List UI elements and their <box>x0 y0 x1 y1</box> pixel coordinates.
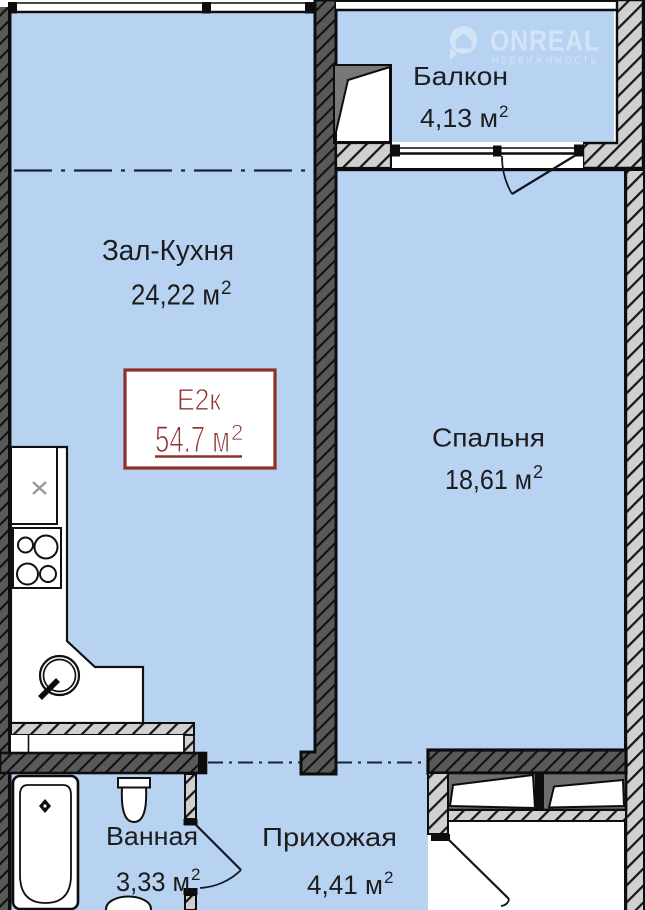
svg-text:НЕДВИЖИМОСТЬ: НЕДВИЖИМОСТЬ <box>492 55 599 67</box>
svg-text:2: 2 <box>221 278 232 299</box>
svg-text:54.7 м: 54.7 м <box>155 419 230 460</box>
svg-text:2: 2 <box>191 865 200 884</box>
svg-text:Е2к: Е2к <box>177 382 221 417</box>
svg-text:2: 2 <box>533 462 543 482</box>
svg-text:Спальня: Спальня <box>432 423 545 453</box>
svg-text:24,22 м: 24,22 м <box>131 280 220 312</box>
svg-text:18,61 м: 18,61 м <box>445 464 532 495</box>
svg-text:2: 2 <box>499 102 508 121</box>
svg-text:2: 2 <box>231 420 243 445</box>
svg-text:3,33 м: 3,33 м <box>116 867 190 897</box>
svg-text:Зал-Кухня: Зал-Кухня <box>102 235 234 267</box>
svg-text:Ванная: Ванная <box>106 821 198 851</box>
svg-text:Прихожая: Прихожая <box>262 822 397 852</box>
svg-text:Балкон: Балкон <box>413 61 508 91</box>
svg-text:ONREAL: ONREAL <box>490 26 600 58</box>
svg-text:2: 2 <box>384 868 393 887</box>
svg-text:4,41 м: 4,41 м <box>307 870 383 900</box>
svg-text:4,13 м: 4,13 м <box>420 103 498 133</box>
